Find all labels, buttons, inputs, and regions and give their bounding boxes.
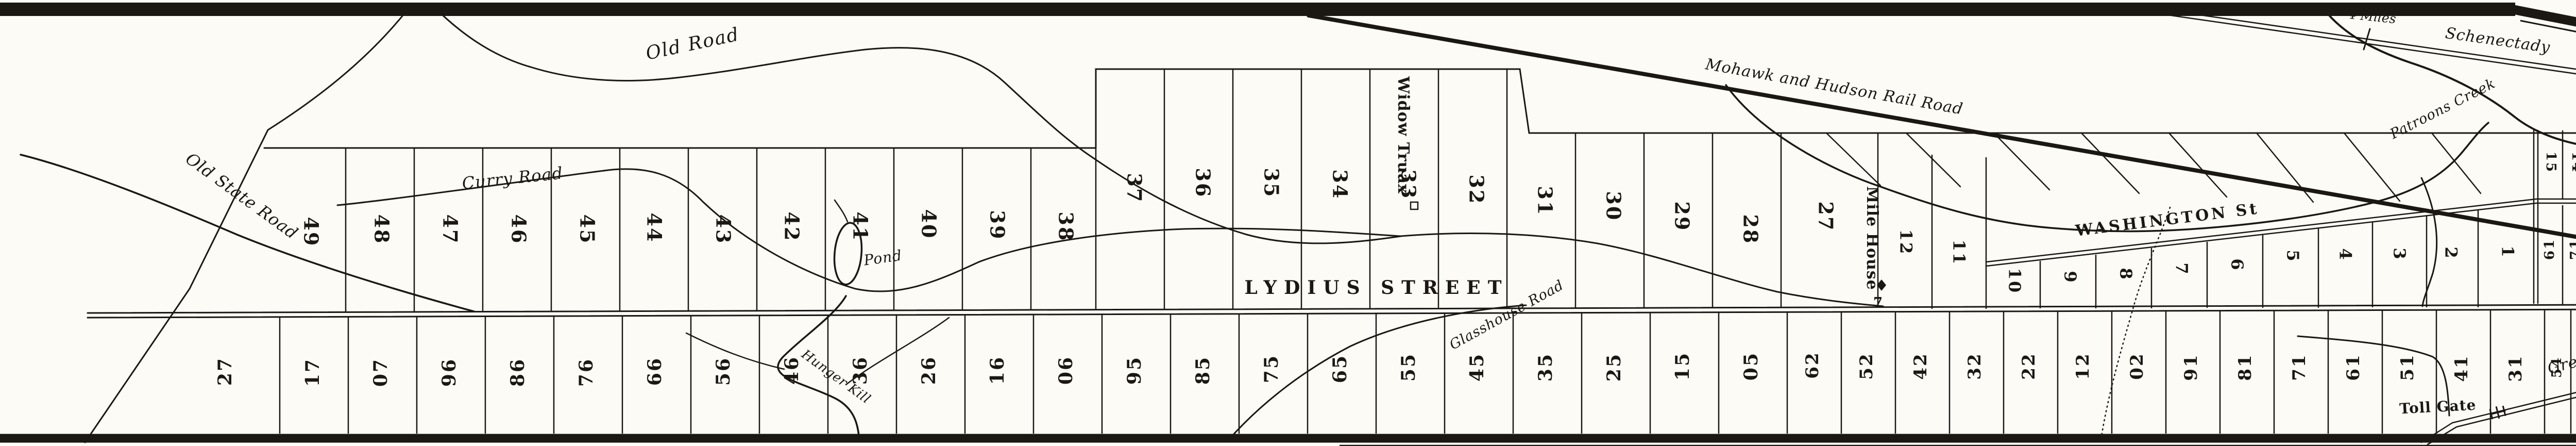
north-main-lot-number-30: 30 [1602,191,1625,222]
north-wedge-lot-number-4: 4 [2336,248,2355,261]
south-mid-lot-number-15: 51 [2397,353,2418,381]
south-main-lot-number-56: 65 [1329,354,1351,383]
south-main-lot-number-62: 26 [918,356,940,385]
south-main-lot-number-52: 25 [1603,353,1625,382]
map-svg: 4948474645444342414039383736353433323130… [0,0,2576,446]
north-main-lot-number-45: 45 [576,214,599,245]
north-wedge-lot-number-10: 10 [2005,268,2025,294]
south-main-lot-number-57: 75 [1261,354,1282,383]
north-main-lot-number-44: 44 [643,213,666,243]
mile-house-label: Mile House [1863,186,1881,290]
north-main-lot-number-42: 42 [781,212,804,242]
mile-7-label: 7 [1873,295,1883,310]
north-main-lot-number-28: 28 [1739,214,1762,245]
north-narrow-lot-number-14: 14 [2569,152,2576,173]
south-mid-lot-number-22: 22 [2019,352,2039,379]
north-main-lot-number-37: 37 [1123,173,1146,204]
south-mid-lot-number-20: 02 [2127,352,2147,379]
north-main-lot-number-38: 38 [1055,212,1078,242]
south-main-lot-number-70: 07 [370,358,392,387]
south-mid-lot-number-24: 42 [1910,352,1931,379]
north-wedge-lot-number-8: 8 [2116,268,2136,280]
north-wedge-lot-number-2: 2 [2442,246,2461,259]
historic-map: 4948474645444342414039383736353433323130… [0,0,2576,446]
north-main-lot-number-36: 36 [1192,168,1215,199]
north-wedge-lot-number-3: 3 [2390,247,2410,260]
north-main-lot-number-48: 48 [370,214,394,245]
north-wedge-lot-number-7: 7 [2172,262,2192,275]
north-main-lot-number-32: 32 [1465,175,1488,205]
north-wedge-lot-number-9: 9 [2061,271,2080,284]
south-mid-lot-number-16: 61 [2343,353,2364,381]
middle-narrow-lot-number-16: 61 [2542,238,2557,260]
north-main-lot-number-47: 47 [439,214,462,245]
north-main-lot-number-40: 40 [918,209,941,240]
south-mid-lot-number-18: 81 [2235,353,2256,381]
north-wedge-lot-number-5: 5 [2283,250,2303,262]
south-mid-lot-number-17: 71 [2289,353,2310,381]
south-main-lot-number-68: 86 [507,358,529,387]
south-main-lot-number-61: 16 [987,356,1008,385]
south-main-lot-number-64: 46 [781,356,803,385]
south-main-lot-number-72: 27 [214,357,236,386]
north-main-lot-number-34: 34 [1329,170,1352,200]
south-main-lot-number-65: 56 [713,357,734,386]
north-main-lot-number-29: 29 [1671,202,1694,232]
north-main-lot-number-43: 43 [712,214,735,245]
north-main-lot-number-49: 49 [300,217,323,247]
south-main-lot-number-53: 35 [1535,353,1556,382]
south-main-lot-number-54: 45 [1466,353,1488,382]
north-wedge-lot-number-6: 6 [2228,258,2247,271]
widow-truax-label: Widow Truax [1394,76,1412,194]
south-main-lot-number-50: 05 [1740,352,1762,381]
middle-narrow-lot-number-17: 71 [2568,238,2576,260]
north-main-lot-number-39: 39 [986,210,1009,241]
south-mid-lot-number-23: 32 [1964,352,1985,379]
south-main-lot-number-66: 66 [644,357,666,386]
lydius-street-label: LYDIUS STREET [1244,277,1509,299]
north-wedge-lot-number-1: 1 [2498,245,2518,258]
north-main-lot-number-27: 27 [1815,202,1838,232]
north-narrow-lot-number-15: 15 [2543,152,2558,173]
north-wedge-lot-number-12: 12 [1896,229,1916,256]
south-main-lot-number-69: 96 [438,358,460,387]
south-main-lot-number-71: 17 [302,358,324,387]
south-main-lot-number-58: 85 [1192,356,1214,385]
south-main-lot-number-51: 15 [1672,352,1693,381]
south-mid-lot-number-19: 91 [2181,353,2201,381]
north-wedge-lot-number-11: 11 [1950,240,1969,266]
south-main-lot-number-55: 55 [1398,353,1419,382]
south-main-lot-number-59: 95 [1124,356,1145,385]
south-mid-lot-number-21: 12 [2073,352,2093,379]
south-mid-lot-number-13: 31 [2505,354,2526,382]
north-main-lot-number-35: 35 [1260,168,1283,199]
south-mid-lot-number-14: 41 [2451,354,2472,382]
north-main-lot-number-31: 31 [1534,186,1557,217]
south-mid-lot-number-25: 52 [1856,352,1877,379]
south-mid-lot-number-26: 62 [1802,351,1823,378]
south-main-lot-number-60: 06 [1055,356,1077,385]
south-main-lot-number-67: 76 [575,358,597,387]
north-main-lot-number-46: 46 [507,214,531,245]
